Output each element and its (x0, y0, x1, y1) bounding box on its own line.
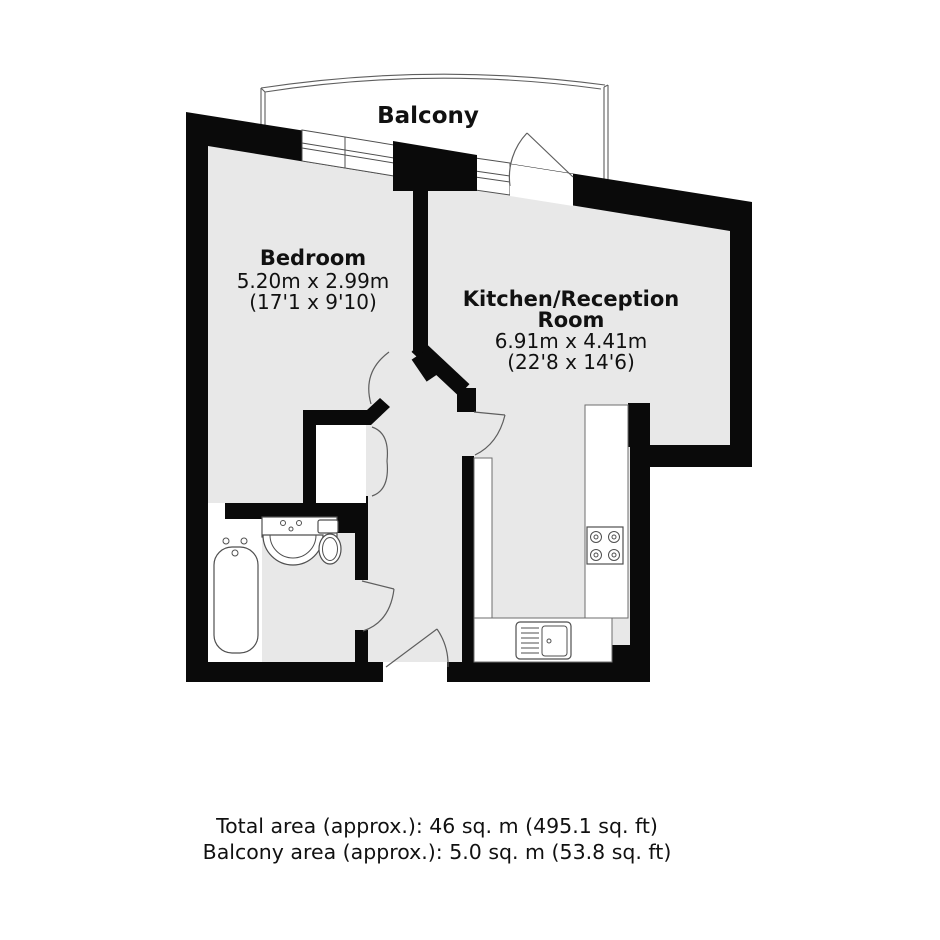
entrance-opening (383, 662, 447, 682)
kitchen-size-imperial: (22'8 x 14'6) (507, 350, 635, 374)
balcony-door (509, 133, 573, 206)
hob-icon (587, 527, 623, 564)
bathtub-icon (214, 538, 258, 653)
floorplan-canvas: Balcony Bedroom 5.20m x 2.99m (17'1 x 9'… (0, 0, 940, 940)
kitchen-sink-icon (516, 622, 571, 659)
floorplan-page: Balcony Bedroom 5.20m x 2.99m (17'1 x 9'… (0, 0, 940, 940)
reception-window-icon (475, 158, 510, 195)
bedroom-name: Bedroom (260, 246, 366, 270)
total-area-text: Total area (approx.): 46 sq. m (495.1 sq… (215, 814, 658, 838)
balcony-area-text: Balcony area (approx.): 5.0 sq. m (53.8 … (203, 840, 672, 864)
bath-niche (208, 503, 225, 519)
balcony-label: Balcony (377, 103, 479, 129)
bedroom-size-imperial: (17'1 x 9'10) (249, 290, 377, 314)
closet-interior (316, 425, 366, 503)
toilet-icon (318, 520, 341, 564)
area-summary: Total area (approx.): 46 sq. m (495.1 sq… (203, 814, 672, 864)
